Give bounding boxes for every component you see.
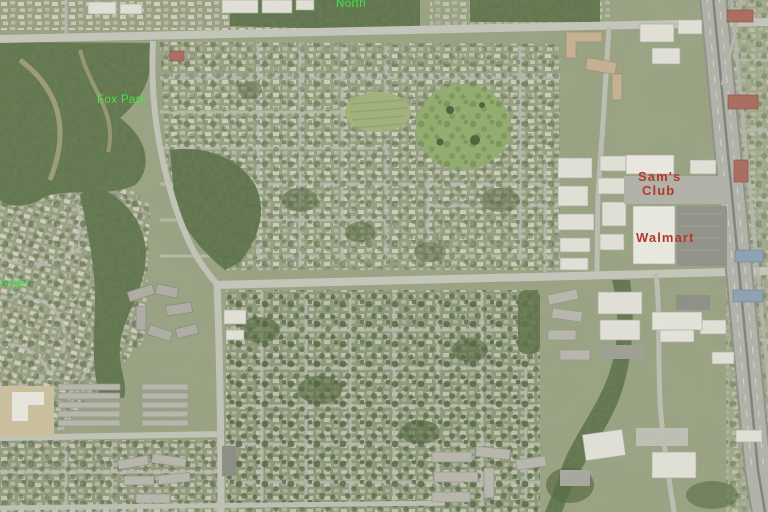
photo-grain-overlay xyxy=(0,0,768,512)
label-sams-club-line1: Sam's xyxy=(638,169,681,184)
label-fox-park: Fox Park xyxy=(97,94,146,106)
label-walmart: Walmart xyxy=(636,230,695,245)
aerial-map-view[interactable]: North Fox Park berger Sam's Club Walmart xyxy=(0,0,768,512)
aerial-imagery-canvas: North Fox Park berger Sam's Club Walmart xyxy=(0,0,768,512)
label-sams-club-line2: Club xyxy=(642,183,675,198)
label-berger-street: berger xyxy=(0,278,30,290)
label-north-street: North xyxy=(336,0,366,10)
